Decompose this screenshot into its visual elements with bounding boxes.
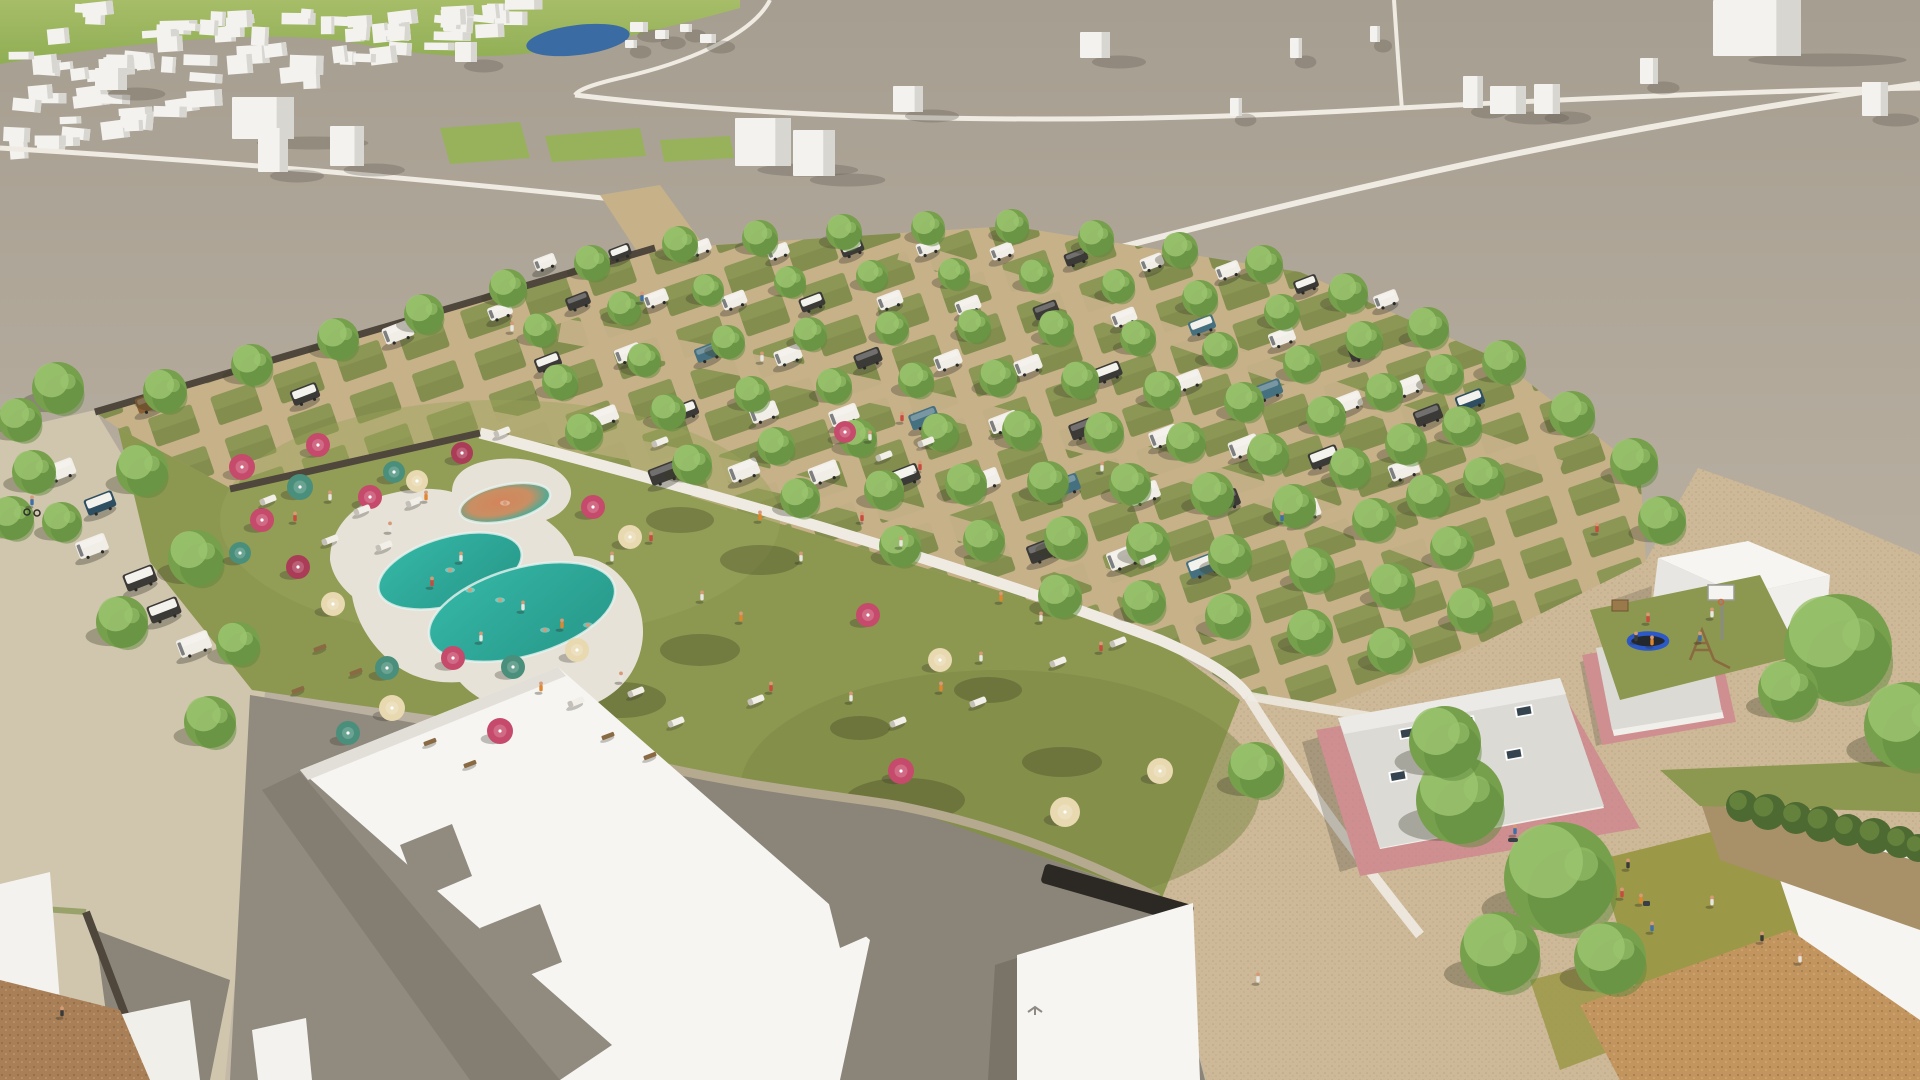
person-shadow [1646, 932, 1654, 935]
parasol-pole [296, 565, 299, 568]
parasol-pole [498, 729, 501, 732]
city-block [227, 10, 252, 28]
person-body [939, 685, 942, 692]
city-block [9, 52, 35, 60]
person-shadow [384, 532, 392, 535]
render-canvas [0, 0, 1920, 1080]
tree-canopy-clump [340, 327, 353, 340]
city-block-side [171, 29, 180, 37]
city-block-side [522, 12, 527, 26]
city-block-side [222, 12, 226, 27]
person-body [1710, 899, 1713, 906]
tree-canopy-clump [1464, 415, 1476, 427]
campsite-aerial-render [0, 0, 1920, 1080]
person-body [1256, 976, 1259, 983]
parasol-pole [575, 648, 578, 651]
person-shadow [1706, 618, 1714, 621]
parasol-pole [866, 613, 869, 616]
tree-canopy-clump [1392, 637, 1406, 651]
parasol-pole [240, 465, 243, 468]
city-block-side [195, 24, 201, 32]
city-block [387, 26, 410, 41]
tree-canopy-clump [1013, 217, 1023, 227]
person-body [1626, 862, 1629, 869]
person-head [860, 512, 864, 516]
cube-side [1653, 58, 1658, 84]
city-block-side [59, 135, 66, 145]
person-body [1760, 935, 1763, 942]
tree-canopy-clump [1266, 254, 1277, 265]
tree-canopy-clump [1214, 482, 1227, 495]
parasol-pole [415, 479, 418, 482]
person-body [1039, 615, 1042, 622]
person-body [799, 555, 802, 562]
person-shadow [475, 642, 483, 645]
tree-canopy-clump [1146, 590, 1159, 603]
city-block [434, 31, 471, 41]
tree-canopy-clump [1486, 466, 1499, 479]
person-head [979, 652, 983, 656]
city-block-side [371, 54, 376, 63]
person-body [293, 515, 296, 522]
person-body [1620, 891, 1623, 898]
parasol-pole [938, 658, 941, 661]
tree-canopy-clump [1448, 722, 1470, 744]
tree-canopy-clump [1328, 405, 1340, 417]
tree-canopy-clump [60, 374, 76, 390]
tree-canopy-clump [1394, 573, 1408, 587]
person-head [388, 522, 392, 526]
parasol-pole [899, 769, 902, 772]
tree-canopy-clump [1270, 442, 1283, 455]
city-block [161, 56, 176, 73]
person-head [700, 591, 704, 595]
hedge-bush [1750, 794, 1786, 830]
tree-canopy-clump [254, 353, 267, 366]
tree-canopy-clump [1062, 584, 1075, 597]
city-block-side [73, 137, 80, 146]
cube-side [1239, 98, 1242, 116]
tree-canopy-clump [1350, 282, 1362, 294]
cube-side [354, 126, 364, 166]
person-head [1100, 462, 1104, 466]
person-body [868, 434, 871, 441]
city-block [347, 15, 372, 28]
city-block [372, 23, 388, 32]
person-head [999, 592, 1003, 596]
person-body [30, 499, 33, 506]
lawn-shadow [1022, 747, 1102, 777]
person-head [649, 532, 653, 536]
person-body [1280, 515, 1283, 522]
person-body [739, 615, 742, 622]
tree-canopy-clump [1408, 432, 1421, 445]
city-block-side [462, 32, 470, 41]
city-block-side [58, 93, 66, 103]
cube-side [1881, 82, 1888, 116]
tree-canopy-clump [541, 321, 551, 331]
parasol-pole [298, 485, 301, 488]
swimmer [583, 622, 593, 627]
person-shadow [1794, 963, 1802, 966]
parasol-pole [511, 665, 514, 668]
person-head [459, 552, 463, 556]
person-body [999, 595, 1002, 602]
person-shadow [517, 611, 525, 614]
person-body [899, 540, 902, 547]
city-block-side [76, 116, 81, 123]
cube-side [775, 118, 791, 166]
cube-side [689, 24, 692, 32]
tree-canopy-clump [212, 708, 228, 724]
city-block-side [139, 120, 144, 131]
tree-canopy-clump [426, 303, 438, 315]
person-shadow [420, 501, 428, 504]
tree-canopy-clump [510, 278, 521, 289]
person-body [388, 525, 391, 532]
tree-canopy-clump [1258, 755, 1275, 772]
city-block [157, 35, 183, 52]
cube-side [1776, 0, 1801, 56]
city-block [441, 9, 467, 26]
person-head [1256, 973, 1260, 977]
person-body [900, 415, 903, 422]
tree-canopy-clump [886, 479, 898, 491]
tree-canopy-clump [835, 376, 846, 387]
person-head [1513, 825, 1517, 829]
swimmer-head [468, 588, 472, 592]
person-body [1710, 611, 1713, 618]
person-head [1798, 953, 1802, 957]
person-shadow [795, 562, 803, 565]
play-sign-board [1612, 600, 1628, 611]
person-head [521, 601, 525, 605]
person-body [521, 604, 524, 611]
person-head [1710, 896, 1714, 900]
person-shadow [756, 362, 764, 365]
hedge-light [1783, 804, 1801, 822]
person-head [799, 552, 803, 556]
cube-side [1516, 86, 1526, 114]
city-block-side [210, 55, 218, 66]
person-head [60, 1007, 64, 1011]
person-head [1595, 523, 1599, 527]
person-shadow [975, 662, 983, 665]
parasol-pole [392, 470, 395, 473]
person-shadow [1646, 646, 1654, 649]
city-block-side [24, 128, 31, 142]
person-shadow [636, 302, 644, 305]
tree-canopy-clump [791, 273, 801, 283]
tree-canopy-clump [1464, 776, 1490, 802]
city-block-side [506, 10, 510, 23]
tree-canopy-clump [1024, 419, 1036, 431]
person-shadow [56, 1017, 64, 1020]
person-head [760, 352, 764, 356]
tree-canopy-clump [929, 219, 939, 229]
city-block-side [498, 23, 505, 37]
person-body [769, 685, 772, 692]
person-shadow [535, 692, 543, 695]
tree-canopy-clump [1139, 328, 1150, 339]
city-block [59, 61, 73, 70]
city-block-side [316, 56, 324, 75]
person-shadow [765, 692, 773, 695]
tree-canopy-clump [1050, 470, 1063, 483]
city-block-side [331, 16, 334, 34]
person-head [293, 512, 297, 516]
tree-canopy-clump [1446, 363, 1458, 375]
person-head [900, 412, 904, 416]
cube-side [1102, 32, 1110, 58]
tree-canopy-clump [1132, 472, 1145, 485]
tree-canopy-clump [36, 460, 49, 473]
person-shadow [995, 602, 1003, 605]
person-shadow [1706, 906, 1714, 909]
tree-canopy-clump [1613, 938, 1635, 960]
hedge-light [1835, 816, 1853, 834]
tree-canopy-clump [968, 472, 981, 485]
person-head [939, 682, 943, 686]
cube-side [280, 128, 288, 172]
person-body [918, 464, 921, 471]
swimmer-head [586, 623, 590, 627]
swimmer-head [498, 598, 502, 602]
city-block-side [179, 107, 187, 118]
person-shadow [1591, 533, 1599, 536]
hedge-light [1729, 792, 1747, 810]
person-body [1650, 925, 1653, 932]
tree-canopy-clump [1430, 484, 1443, 497]
person-shadow [1096, 472, 1104, 475]
person-body [1634, 635, 1637, 642]
tree-canopy-clump [1430, 316, 1443, 329]
tree-canopy-clump [1503, 930, 1527, 954]
person-body [60, 1010, 63, 1017]
tree-canopy-clump [645, 351, 655, 361]
person-head [1760, 932, 1764, 936]
person-shadow [896, 422, 904, 425]
tree-canopy-clump [802, 487, 814, 499]
tree-canopy-clump [1312, 619, 1326, 633]
person-head [918, 461, 922, 465]
person-head [539, 682, 543, 686]
city-block-side [406, 43, 412, 56]
city-block-side [466, 17, 473, 33]
cube-side [1553, 84, 1560, 114]
tree-canopy-clump [64, 511, 76, 523]
tree-canopy-clump [1304, 354, 1315, 365]
city-block-side [366, 15, 372, 27]
tree-canopy-clump [1386, 382, 1397, 393]
person-shadow [1622, 869, 1630, 872]
city-block-side [466, 5, 474, 17]
person-shadow [1616, 898, 1624, 901]
person-body [1513, 828, 1516, 835]
person-shadow [1635, 904, 1643, 907]
person-head [1646, 613, 1650, 617]
person-head [868, 431, 872, 435]
tree-canopy-clump [1057, 318, 1068, 329]
hedge-light [1754, 797, 1774, 817]
hedge-light [1860, 821, 1880, 841]
tree-canopy-clump [1188, 431, 1200, 443]
hedge-light [1808, 809, 1828, 829]
person-head [30, 496, 34, 500]
tree-canopy-clump [1181, 240, 1192, 251]
person-shadow [864, 441, 872, 444]
stroller [1643, 901, 1650, 906]
person-shadow [615, 682, 623, 685]
tree-canopy-clump [1097, 228, 1108, 239]
person-body [849, 695, 852, 702]
tree-canopy-clump [198, 543, 215, 560]
tree-canopy-clump [1842, 618, 1874, 650]
swimmer [465, 587, 475, 592]
parasol-pole [368, 495, 371, 498]
person-shadow [696, 601, 704, 604]
person-head [1698, 632, 1702, 636]
city-block [332, 45, 349, 63]
person-body [619, 675, 622, 682]
tree-canopy-clump [1314, 557, 1328, 571]
person-body [1595, 526, 1598, 533]
tree-canopy-clump [955, 265, 965, 275]
tree-canopy-clump [1283, 302, 1294, 313]
tree-canopy-clump [1506, 350, 1519, 363]
person-head [1639, 894, 1643, 898]
city-block-side [534, 0, 542, 10]
city-block [475, 23, 504, 38]
lawn-shadow [954, 677, 1022, 703]
tree-canopy-clump [561, 372, 572, 383]
city-block-side [215, 74, 223, 84]
city-block [124, 120, 143, 132]
tree-canopy-clump [729, 333, 739, 343]
person-shadow [895, 547, 903, 550]
tree-canopy-clump [593, 253, 604, 264]
tree-canopy-clump [14, 506, 27, 519]
city-block [301, 8, 314, 18]
tree-canopy-clump [681, 234, 692, 245]
parasol-pole [331, 602, 334, 605]
person-body [459, 555, 462, 562]
tree-canopy-clump [1068, 526, 1081, 539]
city-block-side [246, 10, 252, 27]
lawn-shadow [830, 716, 890, 740]
tree-canopy-clump [1790, 674, 1808, 692]
city-block [251, 26, 269, 45]
person-shadow [455, 562, 463, 565]
person-shadow [1252, 983, 1260, 986]
person-body [860, 515, 863, 522]
swimmer [495, 597, 505, 602]
person-shadow [754, 521, 762, 524]
person-head [424, 491, 428, 495]
person-head [769, 682, 773, 686]
city-block [106, 54, 133, 68]
person-body [510, 325, 513, 332]
tree-canopy-clump [778, 436, 789, 447]
person-body [328, 494, 331, 501]
tree-canopy-clump [942, 422, 953, 433]
swimmer [540, 627, 550, 632]
cube-side [118, 68, 127, 90]
cube-side [823, 130, 835, 176]
person-head [619, 672, 623, 676]
person-shadow [324, 501, 332, 504]
person-head [758, 511, 762, 515]
city-block-side [127, 55, 133, 68]
person-head [430, 577, 434, 581]
person-shadow [1035, 622, 1043, 625]
tree-canopy-clump [1376, 508, 1389, 521]
tree-canopy-clump [1119, 277, 1129, 287]
tree-canopy-clump [975, 317, 985, 327]
person-head [479, 632, 483, 636]
person-head [1280, 512, 1284, 516]
tree-canopy-clump [625, 299, 635, 309]
tree-canopy-clump [845, 222, 856, 233]
tree-canopy-clump [902, 534, 915, 547]
person-body [979, 655, 982, 662]
cube-side [471, 42, 477, 62]
lawn-shadow [660, 634, 740, 666]
tree-canopy-clump [144, 456, 160, 472]
lawn-shadow [646, 507, 714, 533]
person-head [1650, 922, 1654, 926]
person-shadow [1630, 642, 1638, 645]
city-block-side [404, 26, 410, 40]
tree-canopy-clump [709, 281, 719, 291]
lawn-shadow [720, 545, 800, 575]
person-shadow [556, 629, 564, 632]
tree-canopy-clump [1366, 330, 1377, 341]
tree-canopy-clump [1037, 267, 1047, 277]
person-body [640, 295, 643, 302]
parasol-pole [460, 451, 463, 454]
city-park-patch [440, 122, 530, 164]
person-body [1100, 465, 1103, 472]
person-head [1634, 632, 1638, 636]
tree-canopy-clump [1221, 340, 1232, 351]
tree-canopy-clump [811, 325, 821, 335]
person-shadow [845, 702, 853, 705]
person-body [430, 580, 433, 587]
city-block [186, 89, 223, 108]
person-head [899, 537, 903, 541]
cube-side [643, 22, 648, 32]
tree-canopy-clump [1664, 507, 1678, 521]
person-shadow [1694, 642, 1702, 645]
city-block-side [34, 100, 41, 113]
parasol-pole [843, 430, 846, 433]
tree-canopy-clump [124, 608, 140, 624]
city-block [505, 0, 543, 10]
tree-canopy-clump [586, 422, 597, 433]
person-head [1650, 636, 1654, 640]
tree-canopy-clump [1636, 449, 1650, 463]
person-head [328, 491, 332, 495]
person-shadow [1642, 623, 1650, 626]
tree-canopy-clump [893, 319, 903, 329]
cube-side [1377, 26, 1380, 42]
city-block [183, 54, 217, 66]
city-block [482, 3, 500, 19]
city-block-side [448, 43, 455, 50]
person-head [510, 322, 514, 326]
parasol-pole [591, 505, 594, 508]
